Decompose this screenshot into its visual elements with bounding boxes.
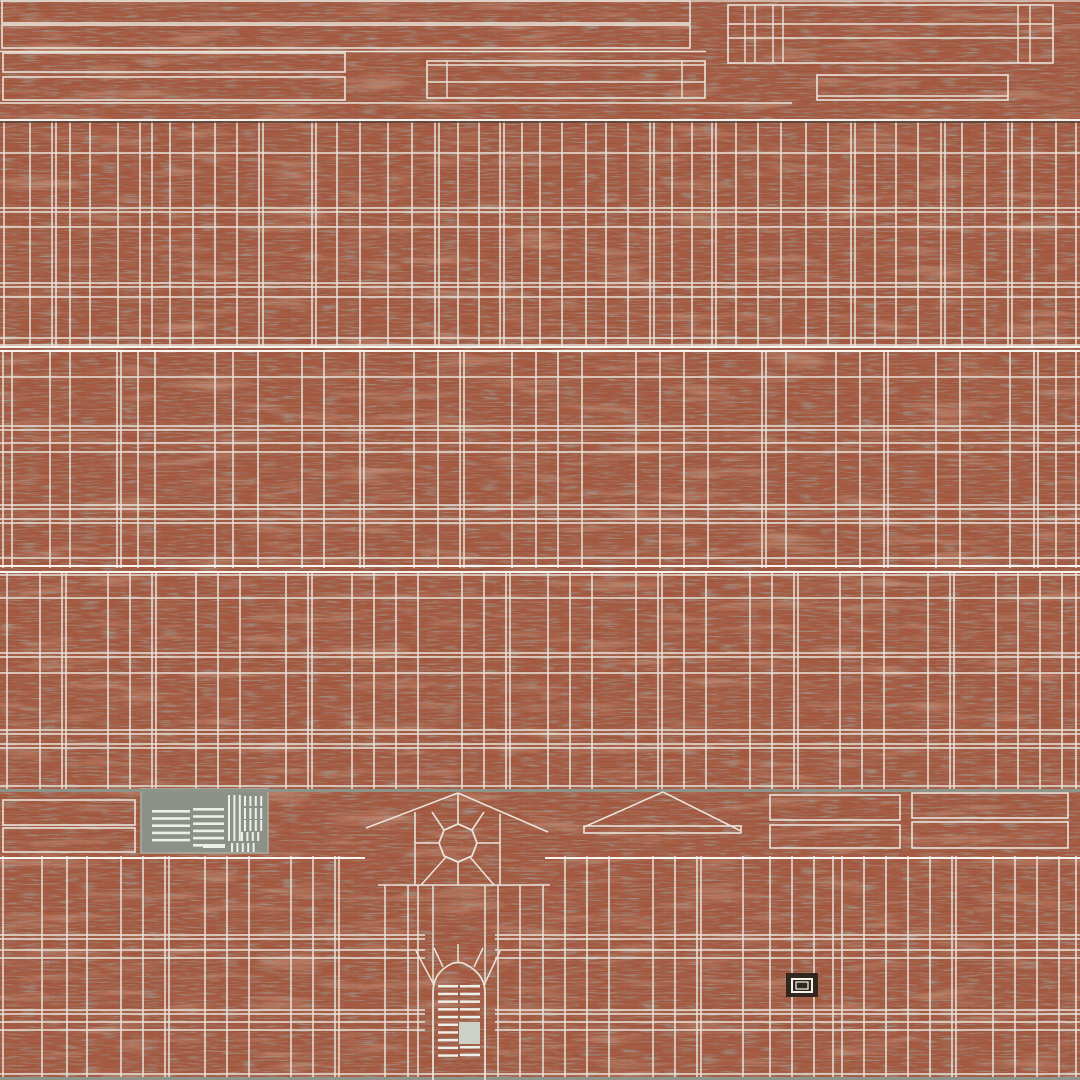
grille-vent-row-3 (244, 820, 246, 831)
grille-vent-tall (233, 795, 235, 841)
grille-louver-b (193, 822, 224, 825)
grille-vent-row-1 (249, 796, 251, 806)
grille-vent-row-2 (260, 808, 262, 819)
door-louver-left (438, 1024, 458, 1027)
door-louver-left (438, 1047, 458, 1050)
door-louver-right-top (460, 985, 480, 988)
texture-canvas (0, 0, 1080, 1080)
door-louver-left (438, 1000, 458, 1003)
grille-louver-a (152, 817, 190, 820)
door-louver-left (438, 1031, 458, 1034)
grille-vent-row-4 (246, 832, 248, 841)
door-louver-left (438, 1008, 458, 1011)
door-louver-left (438, 1016, 458, 1019)
grille-vent-row-1 (260, 796, 262, 806)
door-louver-left (438, 1054, 458, 1057)
grille-louver-b (193, 844, 224, 847)
grille-vent-row-2 (244, 808, 246, 819)
grille-vent-bottom (253, 843, 255, 852)
grille-louver-b (193, 808, 224, 811)
grille-louver-a (152, 810, 190, 813)
grille-louver-b (193, 815, 224, 818)
door-louver-left (438, 985, 458, 988)
grille-vent-bottom (242, 843, 244, 852)
grille-vent-bottom (231, 843, 233, 852)
grille-louver-a (152, 832, 190, 835)
grille-vent-bottom (236, 843, 238, 852)
grille-vent-row-3 (249, 820, 251, 831)
grille-vent-row-4 (252, 832, 254, 841)
grille-louver-b (193, 830, 224, 833)
door-louver-right-top (460, 1016, 480, 1019)
grille-vent-row-4 (257, 832, 259, 841)
door-louver-left (438, 993, 458, 996)
grille-louver-a (152, 824, 190, 827)
door-louver-right-bottom (460, 1046, 480, 1049)
grille-vent-row-2 (249, 808, 251, 819)
door-louver-right-top (460, 1008, 480, 1011)
plaque (786, 973, 818, 997)
grille-vent-tall (228, 795, 230, 841)
grille-vent-row-1 (244, 796, 246, 806)
grille-vent-tall (239, 795, 241, 841)
door-louver-right-bottom (460, 1054, 480, 1057)
door-louver-right-top (460, 1000, 480, 1003)
grille-louver-a (152, 839, 190, 842)
grille-vent-row-1 (255, 796, 257, 806)
door-louver-right-top (460, 993, 480, 996)
grille-vent-row-3 (260, 820, 262, 831)
grille-louver-b (193, 837, 224, 840)
grille-vent-row-4 (241, 832, 243, 841)
grille-vent-bottom (247, 843, 249, 852)
door-panel-blank (459, 1022, 480, 1044)
grille-vent-row-3 (255, 820, 257, 831)
uv-texture-atlas (0, 0, 1080, 1080)
grille-vent-row-2 (255, 808, 257, 819)
door-louver-left (438, 1039, 458, 1042)
